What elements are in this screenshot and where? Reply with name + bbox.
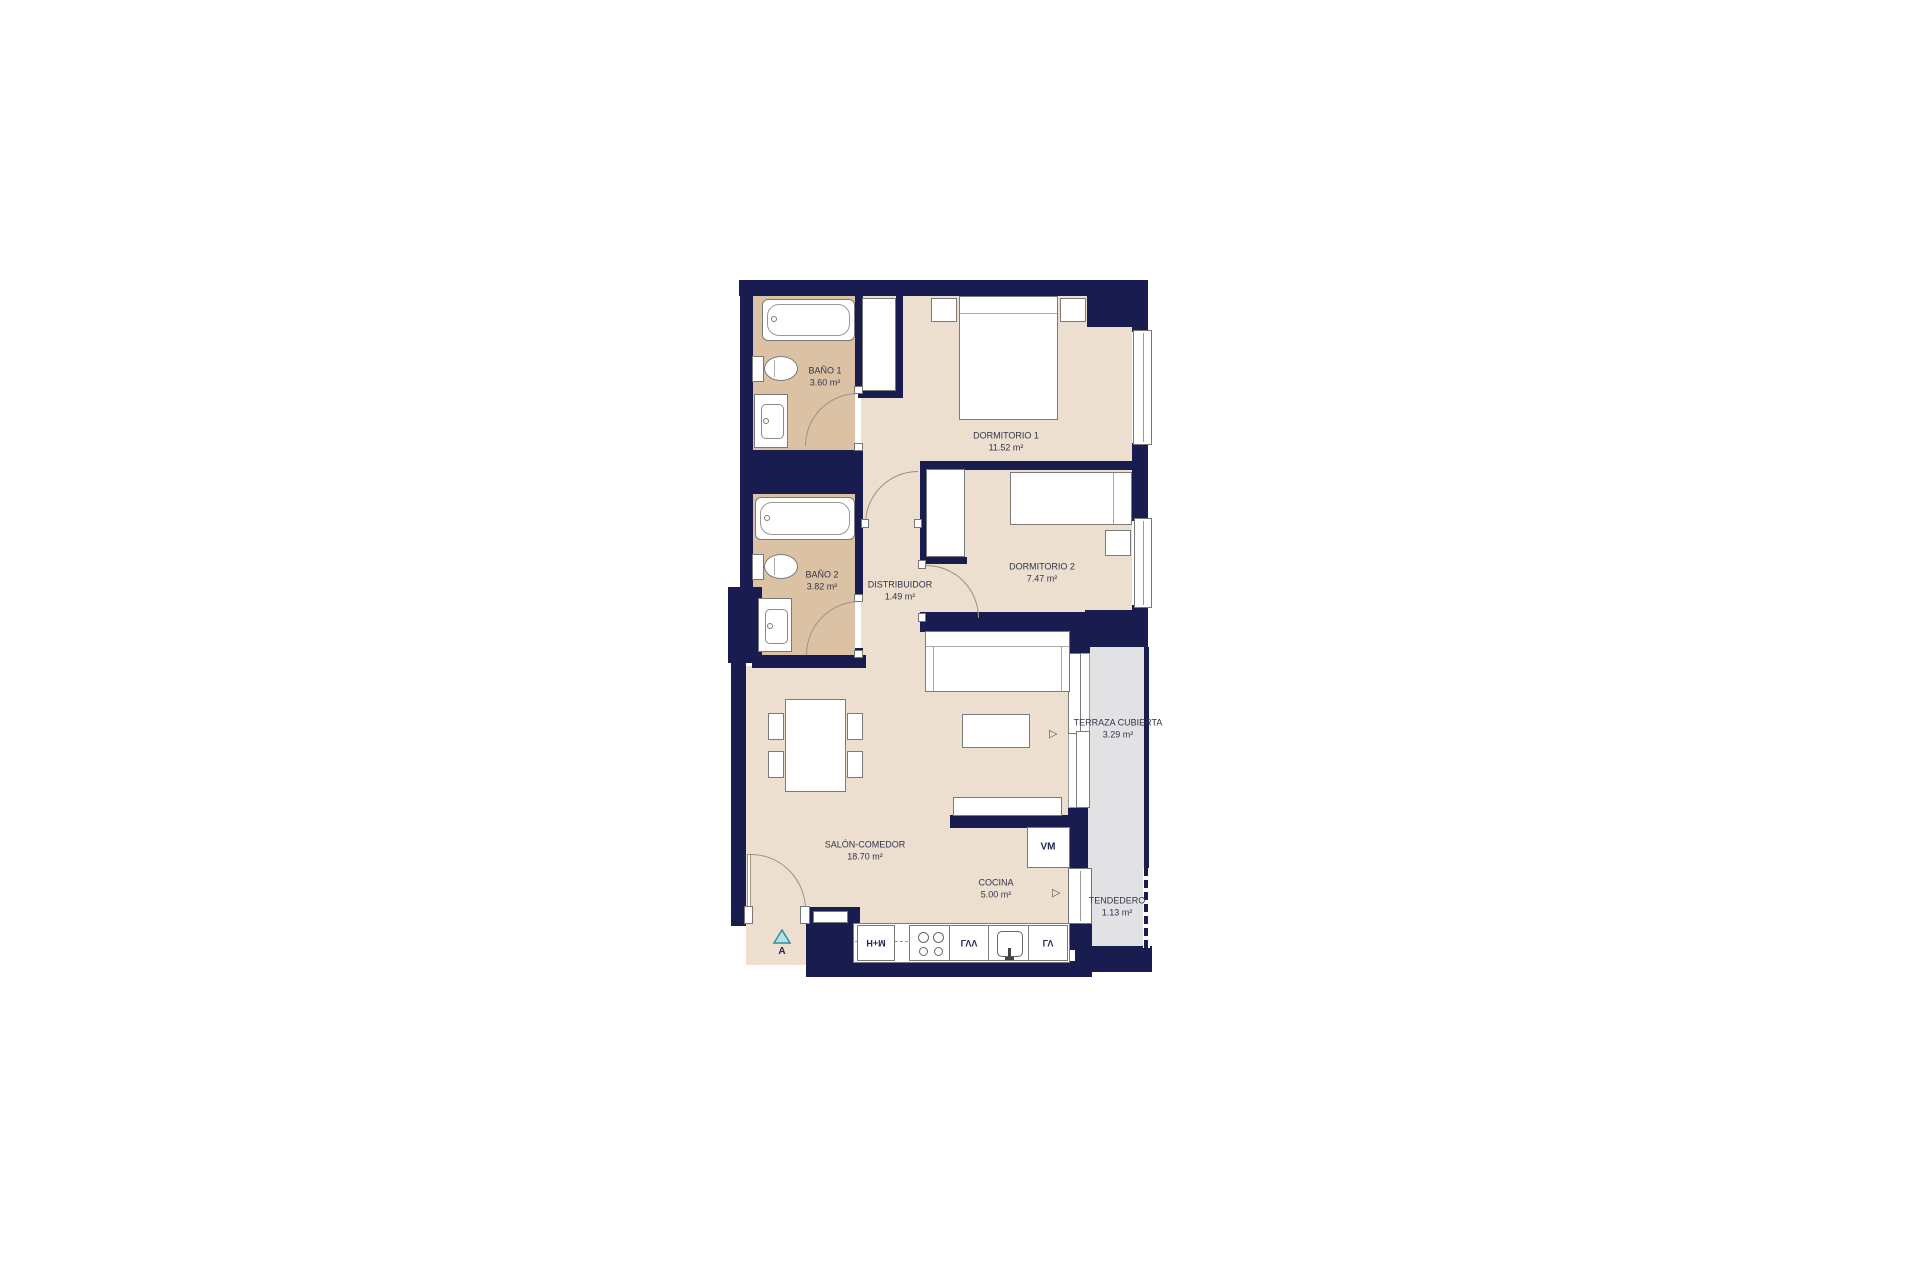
chair: [847, 713, 863, 740]
chair: [847, 751, 863, 778]
coffee-table: [962, 714, 1030, 748]
wall-kitchen-bottom: [847, 961, 1092, 977]
dishwasher-label: LVV: [961, 938, 978, 948]
door-jamb-entrance-right: [800, 906, 810, 924]
door-jamb: [918, 560, 926, 569]
bathtub-bano2: [755, 497, 855, 540]
wardrobe-dormitorio2: [926, 469, 965, 557]
sink-unit: [988, 925, 1029, 961]
door-jamb: [861, 519, 869, 528]
vanity-bano1: [754, 394, 788, 448]
washer-label: LV: [1043, 938, 1054, 948]
bathtub-bano1: [762, 299, 855, 341]
label-salon: SALÓN-COMEDOR 18.70 m²: [825, 840, 906, 863]
chair: [768, 751, 784, 778]
entrance-marker-label: A: [778, 946, 785, 957]
dining-table: [785, 699, 846, 792]
nightstand-dormitorio1-left: [931, 298, 957, 322]
slide-direction-icon: ▷: [1052, 888, 1060, 898]
window-dormitorio1: [1133, 330, 1152, 445]
sliding-door-panel-2: [1076, 731, 1090, 808]
wall-terraza-top: [1085, 610, 1148, 647]
wall-bano2-right: [855, 494, 863, 598]
label-tendedero: TENDEDERO 1.13 m²: [1089, 896, 1146, 919]
wall-terraza-divider-mid: [1068, 806, 1088, 870]
toilet-tank-bano2: [752, 554, 764, 580]
window-dormitorio2: [1134, 518, 1152, 608]
entrance-cabinet: [813, 911, 848, 923]
vanity-bano2: [758, 598, 792, 652]
label-distribuidor: DISTRIBUIDOR 1.49 m²: [868, 580, 933, 603]
bed-dormitorio2: [1010, 472, 1132, 525]
wall-left-shaft: [728, 587, 762, 663]
nightstand-dormitorio1-right: [1060, 298, 1086, 322]
appliance-box-label: VM: [1041, 842, 1056, 853]
wall-right-mid: [1132, 443, 1148, 521]
wall-between-banos: [740, 450, 863, 494]
wall-left-lower: [731, 660, 746, 926]
nightstand-dormitorio2: [1105, 530, 1131, 556]
door-jamb: [854, 594, 863, 602]
label-bano2: BAÑO 2 3.82 m²: [805, 570, 838, 593]
wall-dorm2-wardrobe-stub: [920, 557, 967, 564]
wall-top-right-pillar: [1087, 296, 1132, 327]
wall-top: [739, 280, 1148, 296]
door-jamb: [914, 519, 922, 528]
wall-terraza-right-edge: [1144, 647, 1149, 870]
label-bano1: BAÑO 1 3.60 m²: [808, 366, 841, 389]
wardrobe-dormitorio1: [862, 298, 896, 391]
label-dormitorio2: DORMITORIO 2 7.47 m²: [1009, 562, 1075, 585]
label-dormitorio1: DORMITORIO 1 11.52 m²: [973, 431, 1039, 454]
wall-wardrobe1-side: [896, 296, 903, 398]
label-cocina: COCINA 5.00 m²: [978, 878, 1013, 901]
wall-left-upper: [740, 280, 753, 592]
label-terraza: TERRAZA CUBIERTA 3.29 m²: [1074, 718, 1163, 741]
door-jamb: [854, 443, 863, 451]
bed-dormitorio1: [959, 296, 1058, 420]
entrance-triangle-icon: [770, 928, 796, 946]
toilet-tank-bano1: [752, 356, 764, 382]
slide-direction-icon: ▷: [1049, 729, 1057, 739]
toilet-bowl-bano1: [764, 356, 798, 381]
wall-right-top: [1132, 280, 1148, 332]
door-jamb: [918, 613, 926, 622]
wall-terraza-divider-top: [1068, 612, 1090, 656]
toilet-bowl-bano2: [764, 554, 798, 579]
door-jamb-entrance-left: [744, 906, 753, 924]
hob-unit: [909, 925, 950, 961]
wall-salon-top-left: [752, 655, 866, 668]
door-leaf-entrance: [747, 854, 751, 910]
floor-plan: H+M LVV LV VM ▷ ▷ A BAÑO 1 3.60 m² DORMI…: [0, 0, 1920, 1280]
sofa: [925, 631, 1070, 692]
chair: [768, 713, 784, 740]
kitchen-peninsula-counter: [953, 797, 1062, 816]
door-jamb: [854, 650, 863, 658]
oven-microwave-label: H+M: [866, 938, 885, 948]
